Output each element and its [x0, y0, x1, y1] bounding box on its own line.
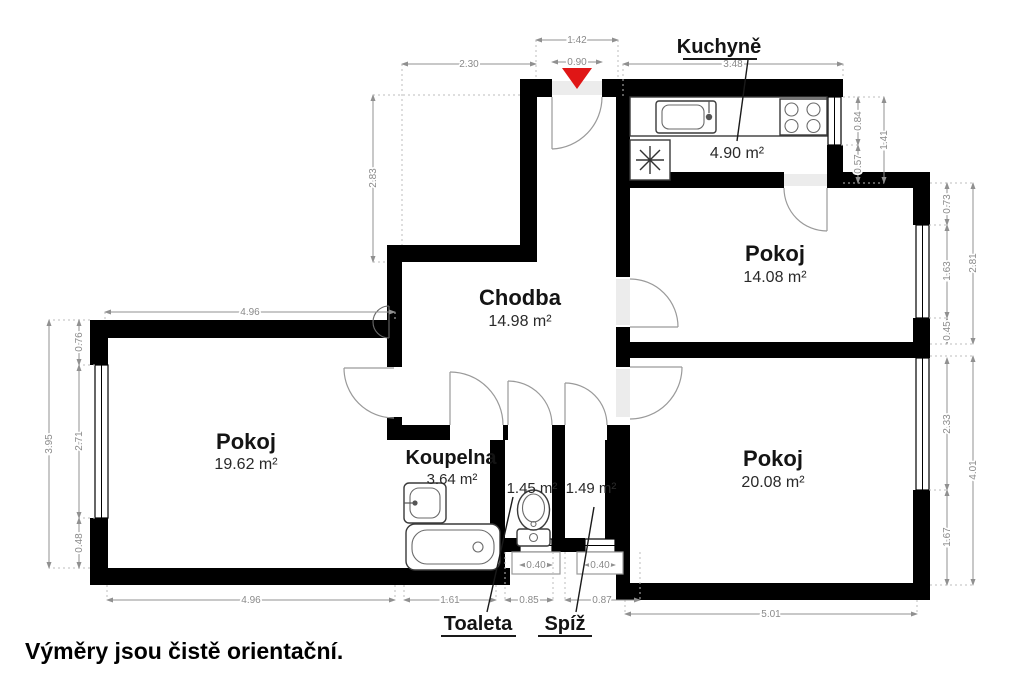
dim-upper-left: 2.83: [368, 168, 379, 188]
dim-kitchen-width: 3.48: [723, 59, 743, 70]
washbasin-icon: [404, 483, 446, 523]
entry-door: [552, 97, 602, 149]
dim-left-pier-top: 0.76: [74, 332, 85, 352]
dim-left-window: 2.71: [74, 431, 85, 451]
dim-p20-total: 4.01: [968, 460, 979, 480]
window-spiz: [585, 539, 615, 552]
fixtures: [373, 97, 827, 570]
room-label-kuchyne: Kuchyně: [677, 36, 761, 58]
dim-p14-total: 2.81: [968, 253, 979, 273]
dim-pokoj-bottom-width: 5.01: [761, 609, 781, 620]
room-label-pokoj-left: Pokoj: [216, 429, 276, 454]
dim-p14-pier-bottom: 0.45: [942, 321, 953, 341]
dim-toaleta-width: 0.85: [519, 595, 539, 606]
floor-plan: 1.42 0.90 2.30 3.48 2.83 0.84 0.57 1.41 …: [0, 0, 1024, 682]
room-area-pokoj-left: 19.62 m²: [214, 456, 278, 473]
door-chodba-pokoj-top: [630, 279, 678, 327]
room-label-spiz: Spíž: [544, 613, 585, 635]
room-area-kuchyne: 4.90 m²: [710, 145, 765, 162]
walls: [90, 79, 930, 600]
dim-left-pier-bottom: 0.48: [74, 533, 85, 553]
dim-kitchen-pier: 0.57: [853, 154, 864, 174]
dim-p14-window: 1.63: [942, 261, 953, 281]
dim-pokoj-left-top: 4.96: [240, 307, 260, 318]
bathtub-icon: [406, 524, 500, 570]
room-area-pokoj-bottom: 20.08 m²: [741, 474, 805, 491]
room-area-pokoj-top: 14.08 m²: [743, 269, 807, 286]
dim-top-entry-total: 1.42: [567, 35, 587, 46]
room-area-toaleta: 1.45 m²: [507, 480, 558, 497]
door-spiz: [565, 383, 607, 425]
door-koupelna: [450, 372, 503, 425]
window-left: [95, 365, 108, 518]
dim-kitchen-right-total: 1.41: [879, 130, 890, 150]
dim-p20-pier: 1.67: [942, 527, 953, 547]
dim-pokoj-left-bottom: 4.96: [241, 595, 261, 606]
dim-toaleta-window: 0.40: [526, 560, 546, 571]
window-pokoj-bottom-right: [916, 358, 929, 490]
window-kitchen-right: [828, 97, 841, 145]
freezer-snowflake-icon: [630, 140, 670, 180]
room-area-koupelna: 3.64 m²: [427, 471, 478, 488]
door-toaleta: [508, 381, 552, 425]
door-chodba-pokoj-left: [344, 368, 394, 418]
room-label-koupelna: Koupelna: [405, 447, 497, 469]
room-label-pokoj-bottom: Pokoj: [743, 446, 803, 471]
disclaimer-text: Výměry jsou čistě orientační.: [25, 638, 343, 664]
dim-spiz-width: 0.87: [592, 595, 612, 606]
door-kitchen-pokoj: [784, 188, 827, 231]
room-label-chodba: Chodba: [479, 285, 562, 310]
room-area-spiz: 1.49 m²: [566, 480, 617, 497]
dim-left-total: 3.95: [44, 434, 55, 454]
kitchen-sink-icon: [656, 101, 716, 133]
room-label-toaleta: Toaleta: [444, 613, 513, 635]
window-pokoj-top-right: [916, 225, 929, 318]
dim-entry-door: 0.90: [567, 57, 587, 68]
door-chodba-pokoj-bottom: [630, 367, 682, 419]
floor-plan-page: 1.42 0.90 2.30 3.48 2.83 0.84 0.57 1.41 …: [0, 0, 1024, 682]
room-area-chodba: 14.98 m²: [488, 313, 552, 330]
dim-top-left: 2.30: [459, 59, 479, 70]
dim-koupelna-width: 1.61: [440, 595, 460, 606]
room-label-pokoj-top: Pokoj: [745, 241, 805, 266]
dim-p14-pier-top: 0.73: [942, 194, 953, 214]
dim-p20-window: 2.33: [942, 414, 953, 434]
dim-kitchen-window: 0.84: [853, 111, 864, 131]
stove-icon: [780, 99, 827, 135]
toilet-icon: [517, 490, 550, 546]
dim-spiz-window: 0.40: [590, 560, 610, 571]
